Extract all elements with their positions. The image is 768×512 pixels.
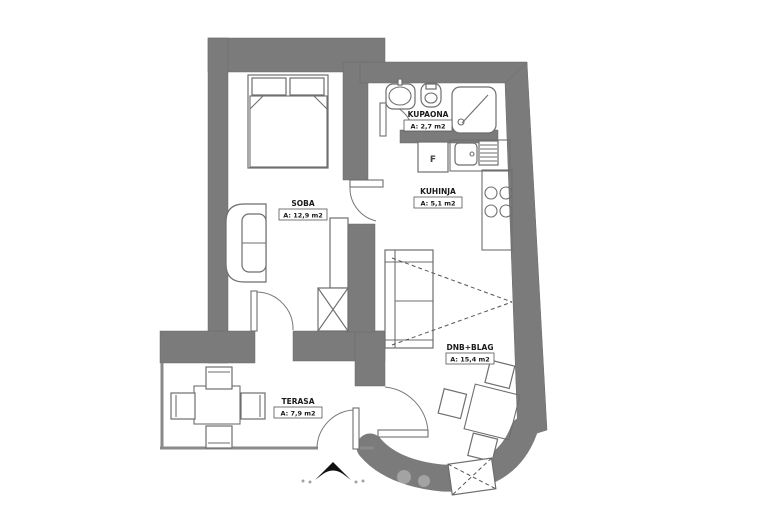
pillow bbox=[252, 78, 286, 95]
terrace-table bbox=[194, 386, 240, 424]
svg-text:KUHINJA: KUHINJA bbox=[420, 187, 456, 196]
watermark-dot bbox=[362, 480, 365, 483]
wardrobe bbox=[318, 218, 348, 331]
bedroom-furniture bbox=[226, 75, 348, 331]
terrace-chair-east bbox=[241, 393, 265, 419]
kitchen-sink bbox=[455, 143, 477, 165]
label-kuhinja: KUHINJA A: 5,1 m2 bbox=[414, 187, 462, 208]
armchair bbox=[226, 204, 266, 282]
terrace-furniture bbox=[171, 367, 265, 448]
stove-burners bbox=[485, 187, 512, 217]
door-terrace-exterior bbox=[317, 408, 359, 449]
watermark-blob bbox=[418, 475, 430, 487]
floorplan-page: F bbox=[0, 0, 768, 512]
door-bedroom-terrace bbox=[251, 291, 293, 331]
svg-text:TERASA: TERASA bbox=[281, 397, 314, 406]
door-bedroom bbox=[350, 180, 383, 221]
fridge-label: F bbox=[430, 155, 436, 165]
svg-text:A: 2,7 m2: A: 2,7 m2 bbox=[410, 123, 445, 131]
wall-pillar-living bbox=[355, 331, 385, 386]
svg-text:DNB+BLAG: DNB+BLAG bbox=[447, 343, 494, 352]
wall-bedroom-left bbox=[208, 38, 228, 363]
toilet bbox=[421, 83, 441, 107]
watermark-dot bbox=[355, 481, 358, 484]
wall-terrace-top-left bbox=[160, 331, 255, 363]
watermark-dot bbox=[302, 480, 305, 483]
label-kupaona: KUPAONA A: 2,7 m2 bbox=[404, 110, 452, 131]
washbasin bbox=[386, 79, 415, 109]
shower bbox=[452, 87, 496, 133]
terrace-chair-south bbox=[206, 426, 232, 448]
svg-text:A: 5,1 m2: A: 5,1 m2 bbox=[420, 200, 455, 208]
svg-text:A: 7,9 m2: A: 7,9 m2 bbox=[280, 410, 315, 418]
svg-text:A: 15,4 m2: A: 15,4 m2 bbox=[450, 356, 490, 364]
double-bed bbox=[248, 75, 328, 168]
wall-bathroom-top bbox=[360, 62, 527, 83]
floorplan-drawing: F bbox=[0, 0, 768, 512]
house-icon bbox=[315, 462, 351, 480]
svg-text:A: 12,9 m2: A: 12,9 m2 bbox=[283, 212, 323, 220]
label-terasa: TERASA A: 7,9 m2 bbox=[274, 397, 322, 418]
crossed-box bbox=[448, 458, 496, 495]
svg-text:KUPAONA: KUPAONA bbox=[408, 110, 449, 119]
dining-chair bbox=[438, 389, 466, 419]
drainboard bbox=[479, 141, 498, 165]
label-soba: SOBA A: 12,9 m2 bbox=[279, 199, 327, 220]
svg-text:SOBA: SOBA bbox=[291, 199, 314, 208]
wall-bedroom-right-lower bbox=[347, 224, 375, 332]
label-dnb-blag: DNB+BLAG A: 15,4 m2 bbox=[446, 343, 494, 364]
watermark-blob bbox=[512, 469, 526, 483]
dining-chair bbox=[468, 433, 498, 461]
door-living-terrace bbox=[378, 387, 428, 437]
watermark-blob bbox=[397, 470, 411, 484]
pillow bbox=[290, 78, 324, 95]
terrace-chair-north bbox=[206, 367, 232, 389]
terrace-chair-west bbox=[171, 393, 195, 419]
watermark-dot bbox=[309, 481, 312, 484]
